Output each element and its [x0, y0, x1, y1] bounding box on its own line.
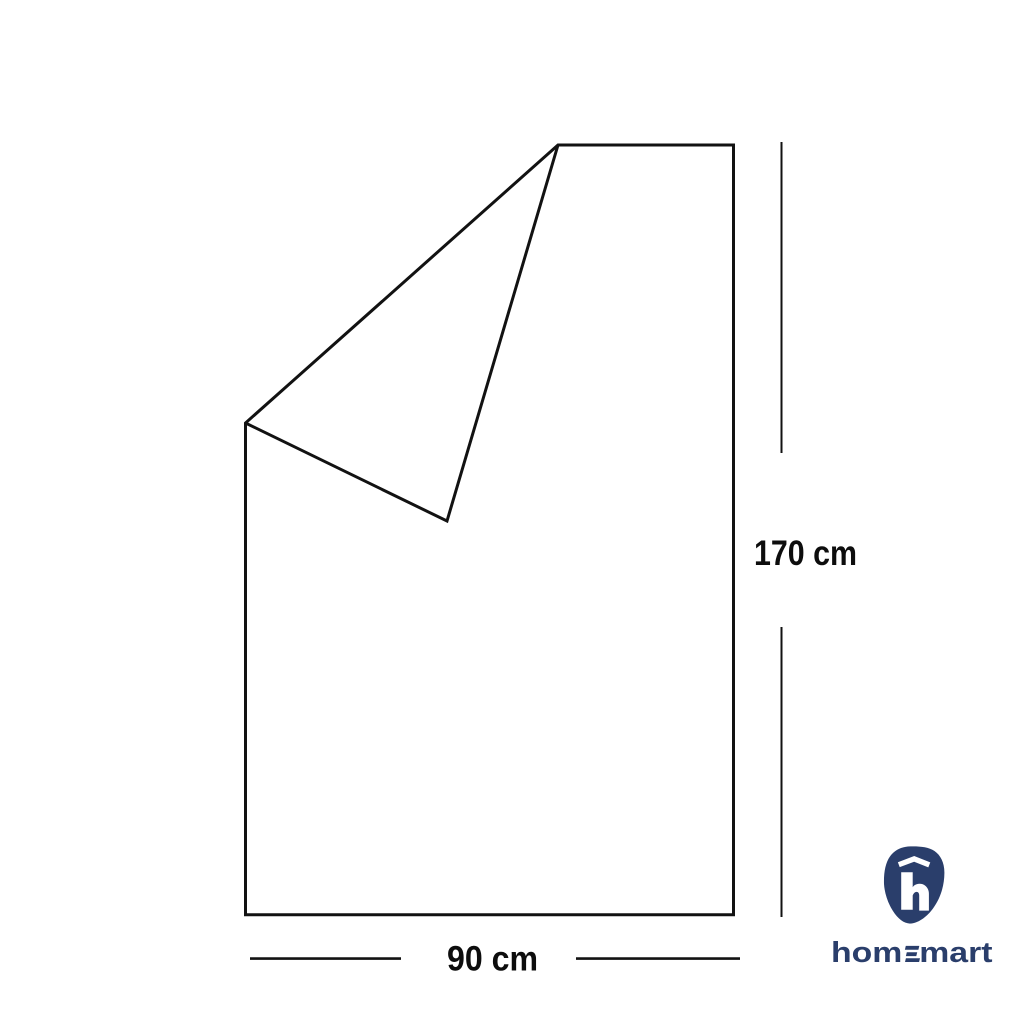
- svg-text:170 cm: 170 cm: [754, 534, 857, 573]
- svg-text:90 cm: 90 cm: [447, 940, 538, 979]
